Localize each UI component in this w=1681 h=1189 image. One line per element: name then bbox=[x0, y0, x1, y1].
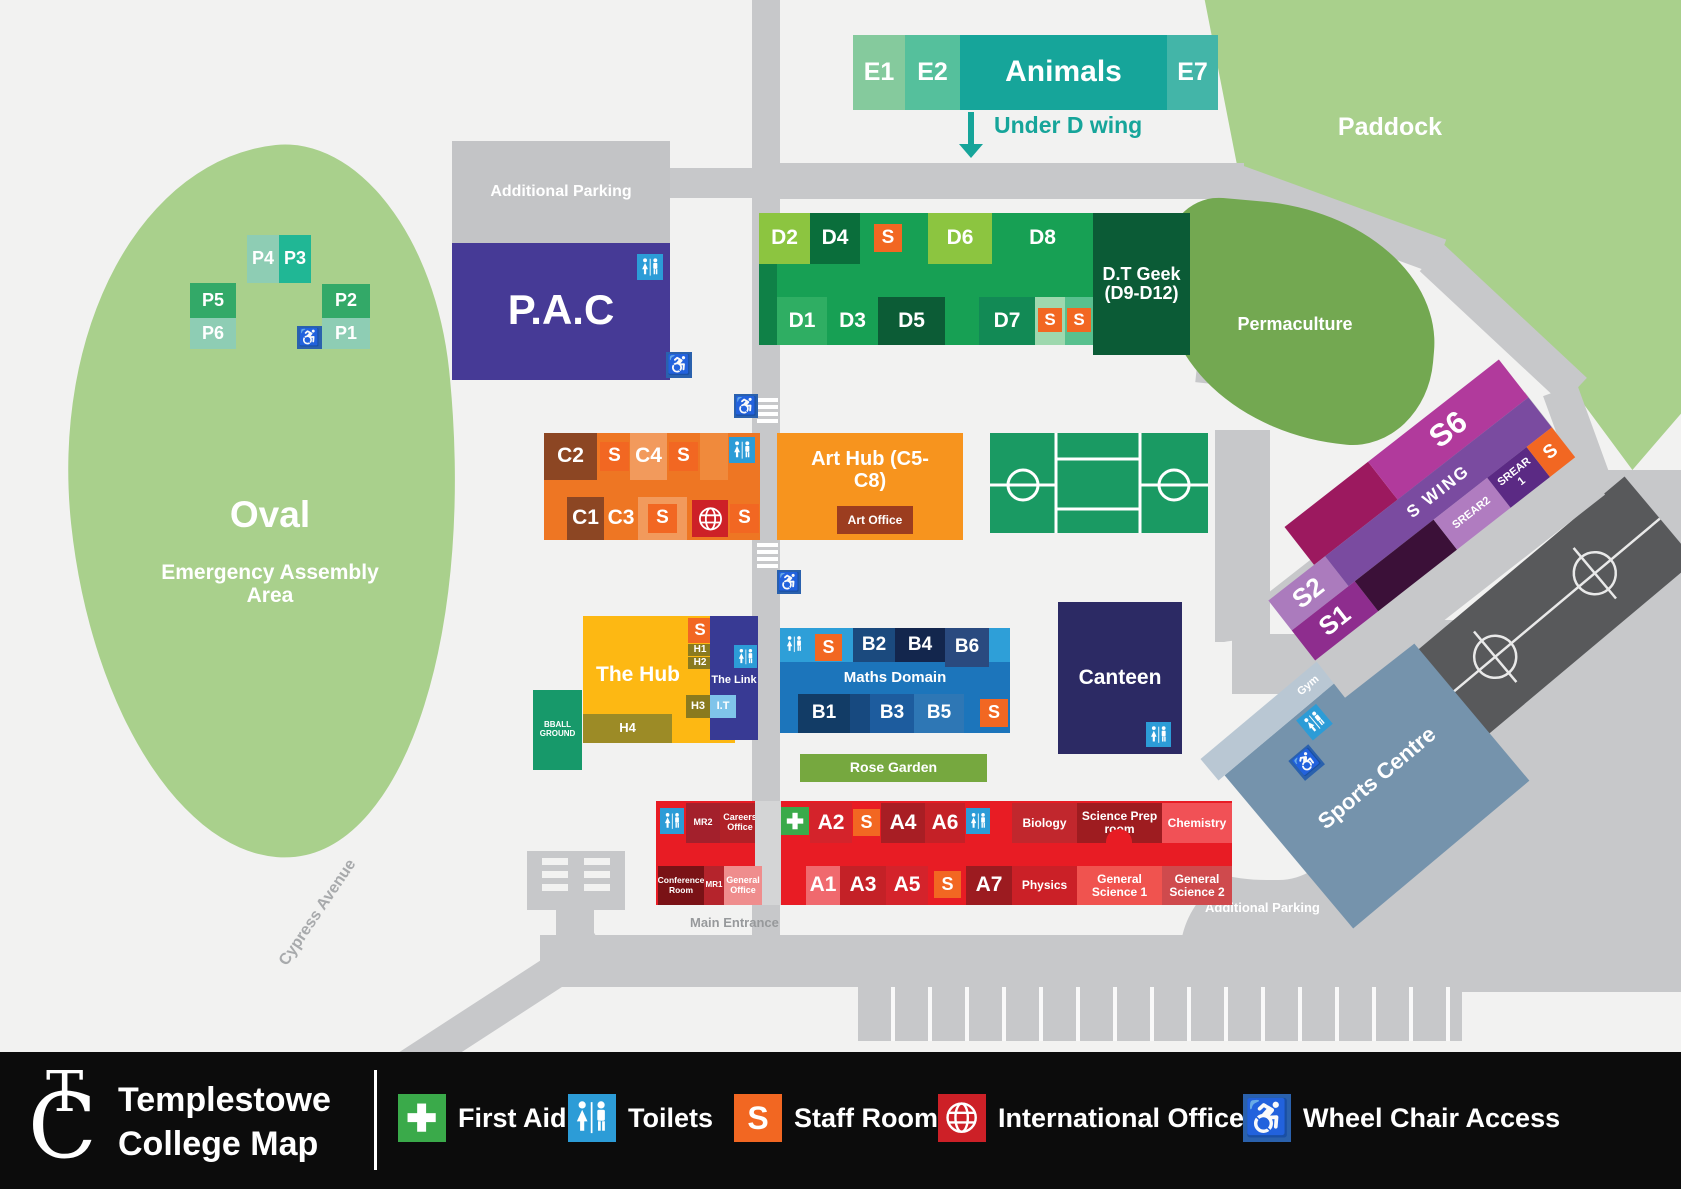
room-h3: H3 bbox=[686, 695, 710, 718]
staff-room-icon: S bbox=[688, 618, 712, 643]
room-d7: D7 bbox=[979, 297, 1035, 345]
road-top bbox=[766, 163, 1244, 199]
crossing-stripe bbox=[757, 412, 778, 416]
room-a4: A4 bbox=[881, 803, 925, 843]
crossing-stripe bbox=[757, 543, 778, 547]
room-biology: Biology bbox=[1012, 803, 1077, 843]
staff-room-icon: S bbox=[734, 1094, 782, 1142]
building-animals: Animals bbox=[960, 35, 1167, 110]
room-a5: A5 bbox=[886, 866, 928, 905]
legend-divider bbox=[374, 1070, 377, 1170]
room-p1: P1 bbox=[322, 318, 370, 349]
room-b6: B6 bbox=[945, 628, 989, 667]
d-wing-edge bbox=[759, 264, 777, 345]
staff-room-icon: S bbox=[730, 504, 759, 533]
staff-room-icon: S bbox=[980, 699, 1008, 727]
toilets-icon bbox=[637, 254, 663, 280]
room-p4: P4 bbox=[247, 235, 279, 283]
sports-courts bbox=[990, 433, 1208, 533]
legend-toilets-label: Toilets bbox=[628, 1094, 713, 1142]
pac-label: P.A.C bbox=[452, 285, 670, 335]
room-c1: C1 bbox=[567, 497, 604, 540]
room-e7: E7 bbox=[1167, 35, 1218, 110]
crossing-stripe bbox=[757, 405, 778, 409]
legend-first-aid-label: First Aid bbox=[458, 1094, 567, 1142]
rose-garden: Rose Garden bbox=[800, 754, 987, 782]
wheelchair-icon: ♿ bbox=[297, 326, 322, 349]
legend-international-office-label: International Office bbox=[998, 1094, 1244, 1142]
toilets-icon bbox=[729, 437, 755, 463]
international-office-icon bbox=[938, 1094, 986, 1142]
maths-cell bbox=[850, 694, 870, 733]
art-office: Art Office bbox=[837, 506, 913, 534]
room-e2: E2 bbox=[905, 35, 960, 110]
room-d3: D3 bbox=[827, 297, 878, 345]
room-c3: C3 bbox=[604, 497, 638, 540]
room-b5: B5 bbox=[914, 694, 964, 733]
campus-map: Permaculture Cypress Avenue Main Entranc… bbox=[0, 0, 1681, 1189]
room-h4: H4 bbox=[583, 714, 672, 743]
international-office-icon bbox=[692, 500, 728, 537]
staff-room-icon: S bbox=[648, 504, 677, 533]
room-c4: C4 bbox=[630, 433, 667, 480]
room-d1: D1 bbox=[777, 297, 827, 345]
room-p5: P5 bbox=[190, 283, 236, 318]
bus-bay-stem bbox=[556, 908, 594, 938]
under-d-wing-arrow bbox=[968, 112, 974, 144]
legend-staff-room-label: Staff Room bbox=[794, 1094, 938, 1142]
room-d4: D4 bbox=[810, 213, 860, 264]
crossing-stripe bbox=[757, 419, 778, 423]
crossing-stripe bbox=[757, 550, 778, 554]
wheelchair-icon: ♿ bbox=[1243, 1094, 1291, 1142]
general-science-1: General Science 1 bbox=[1077, 866, 1162, 905]
room-d2: D2 bbox=[759, 213, 810, 264]
room-a6: A6 bbox=[925, 803, 965, 843]
the-link-label: The Link bbox=[708, 674, 760, 688]
bus-bay-slot bbox=[584, 871, 610, 878]
careers-office: Careers Office bbox=[720, 803, 760, 843]
crossing-stripe bbox=[757, 398, 778, 402]
toilets-icon bbox=[1146, 722, 1171, 747]
map-title-line2: College Map bbox=[118, 1122, 331, 1166]
staff-room-icon: S bbox=[669, 442, 698, 471]
toilets-icon bbox=[734, 645, 757, 668]
parking-spaces bbox=[858, 987, 1462, 1041]
conference-room: Conference Room bbox=[658, 866, 704, 905]
room-e1: E1 bbox=[853, 35, 905, 110]
room-b2: B2 bbox=[853, 628, 895, 662]
room-physics: Physics bbox=[1012, 866, 1077, 905]
room-a1: A1 bbox=[806, 866, 840, 905]
college-logo: T C bbox=[26, 1060, 112, 1176]
bus-bay-slot bbox=[542, 871, 568, 878]
room-p3: P3 bbox=[279, 235, 311, 283]
toilets-icon bbox=[782, 632, 806, 656]
room-mr1: MR1 bbox=[704, 866, 724, 905]
gym-label: Gym bbox=[1296, 674, 1322, 699]
map-title: Templestowe College Map bbox=[118, 1078, 331, 1166]
room-c2: C2 bbox=[544, 433, 597, 480]
maths-domain-label: Maths Domain bbox=[800, 668, 990, 688]
room-d8: D8 bbox=[992, 213, 1093, 264]
bus-bay-slot bbox=[584, 884, 610, 891]
oval-label: Oval bbox=[200, 495, 340, 535]
staff-room-icon: S bbox=[1067, 308, 1091, 332]
bus-bay-slot bbox=[542, 858, 568, 865]
staff-room-icon: S bbox=[600, 442, 629, 471]
staff-room-icon: S bbox=[1038, 308, 1062, 332]
general-science-2: General Science 2 bbox=[1162, 866, 1232, 905]
map-title-line1: Templestowe bbox=[118, 1078, 331, 1122]
room-p2: P2 bbox=[322, 284, 370, 318]
crossing-stripe bbox=[757, 564, 778, 568]
room-p6: P6 bbox=[190, 318, 236, 349]
pac-parking-label: Additional Parking bbox=[452, 182, 670, 202]
general-office: General Office bbox=[724, 866, 762, 905]
staff-room-icon: S bbox=[815, 634, 842, 661]
room-chemistry: Chemistry bbox=[1162, 803, 1232, 843]
staff-room-icon: S bbox=[853, 809, 880, 836]
room-d6: D6 bbox=[928, 213, 992, 264]
room-a2: A2 bbox=[810, 803, 852, 843]
legend-wheelchair-label: Wheel Chair Access bbox=[1303, 1094, 1560, 1142]
room-b1: B1 bbox=[798, 694, 850, 733]
under-d-wing-arrowhead bbox=[959, 144, 983, 158]
room-a7: A7 bbox=[966, 866, 1012, 905]
wheelchair-icon: ♿ bbox=[777, 570, 801, 594]
bball-ground: BBALL GROUND bbox=[533, 690, 582, 770]
wheelchair-icon: ♿ bbox=[666, 352, 692, 378]
road-pac-stub bbox=[670, 168, 755, 198]
main-entrance-label: Main Entrance bbox=[690, 915, 820, 931]
room-mr2: MR2 bbox=[686, 803, 720, 843]
permaculture-label: Permaculture bbox=[1215, 312, 1375, 338]
logo-letter-c: C bbox=[28, 1074, 97, 1179]
room-h2: H2 bbox=[688, 657, 712, 669]
road-bottom bbox=[540, 935, 1681, 987]
building-dt-geek: D.T Geek (D9-D12) bbox=[1093, 213, 1190, 355]
staff-room-icon: S bbox=[934, 871, 961, 898]
c-wing-cell bbox=[700, 433, 728, 480]
room-d5: D5 bbox=[878, 297, 945, 345]
toilets-icon bbox=[568, 1094, 616, 1142]
art-hub-label: Art Hub (C5-C8) bbox=[800, 448, 940, 494]
under-d-wing-label: Under D wing bbox=[994, 112, 1174, 140]
bus-bay-slot bbox=[584, 858, 610, 865]
staff-room-icon: S bbox=[874, 224, 902, 252]
room-b4: B4 bbox=[895, 628, 945, 662]
first-aid-icon bbox=[398, 1094, 446, 1142]
bus-bay-slot bbox=[542, 884, 568, 891]
assembly-area-label: Emergency Assembly Area bbox=[148, 556, 392, 614]
the-hub-label: The Hub bbox=[583, 662, 693, 688]
room-it: I.T bbox=[710, 695, 736, 718]
room-a3: A3 bbox=[840, 866, 886, 905]
room-h1: H1 bbox=[688, 644, 712, 656]
toilets-icon bbox=[660, 808, 684, 834]
crossing-stripe bbox=[757, 557, 778, 561]
canteen-label: Canteen bbox=[1058, 666, 1182, 690]
paddock-label: Paddock bbox=[1325, 112, 1455, 142]
room-b3: B3 bbox=[870, 694, 914, 733]
toilets-icon bbox=[966, 808, 990, 834]
wheelchair-icon: ♿ bbox=[734, 394, 758, 418]
road-descending bbox=[1215, 430, 1270, 642]
first-aid-icon bbox=[781, 807, 809, 835]
